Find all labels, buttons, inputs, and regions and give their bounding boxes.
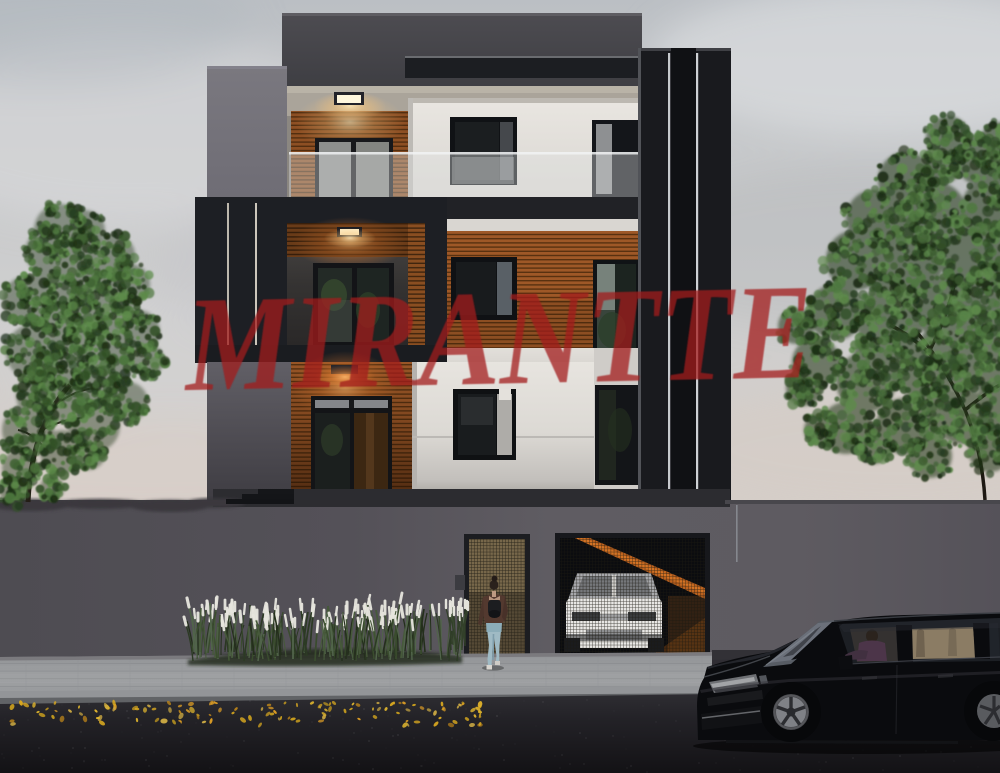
- svg-text:MIRANTTE: MIRANTTE: [182, 257, 815, 420]
